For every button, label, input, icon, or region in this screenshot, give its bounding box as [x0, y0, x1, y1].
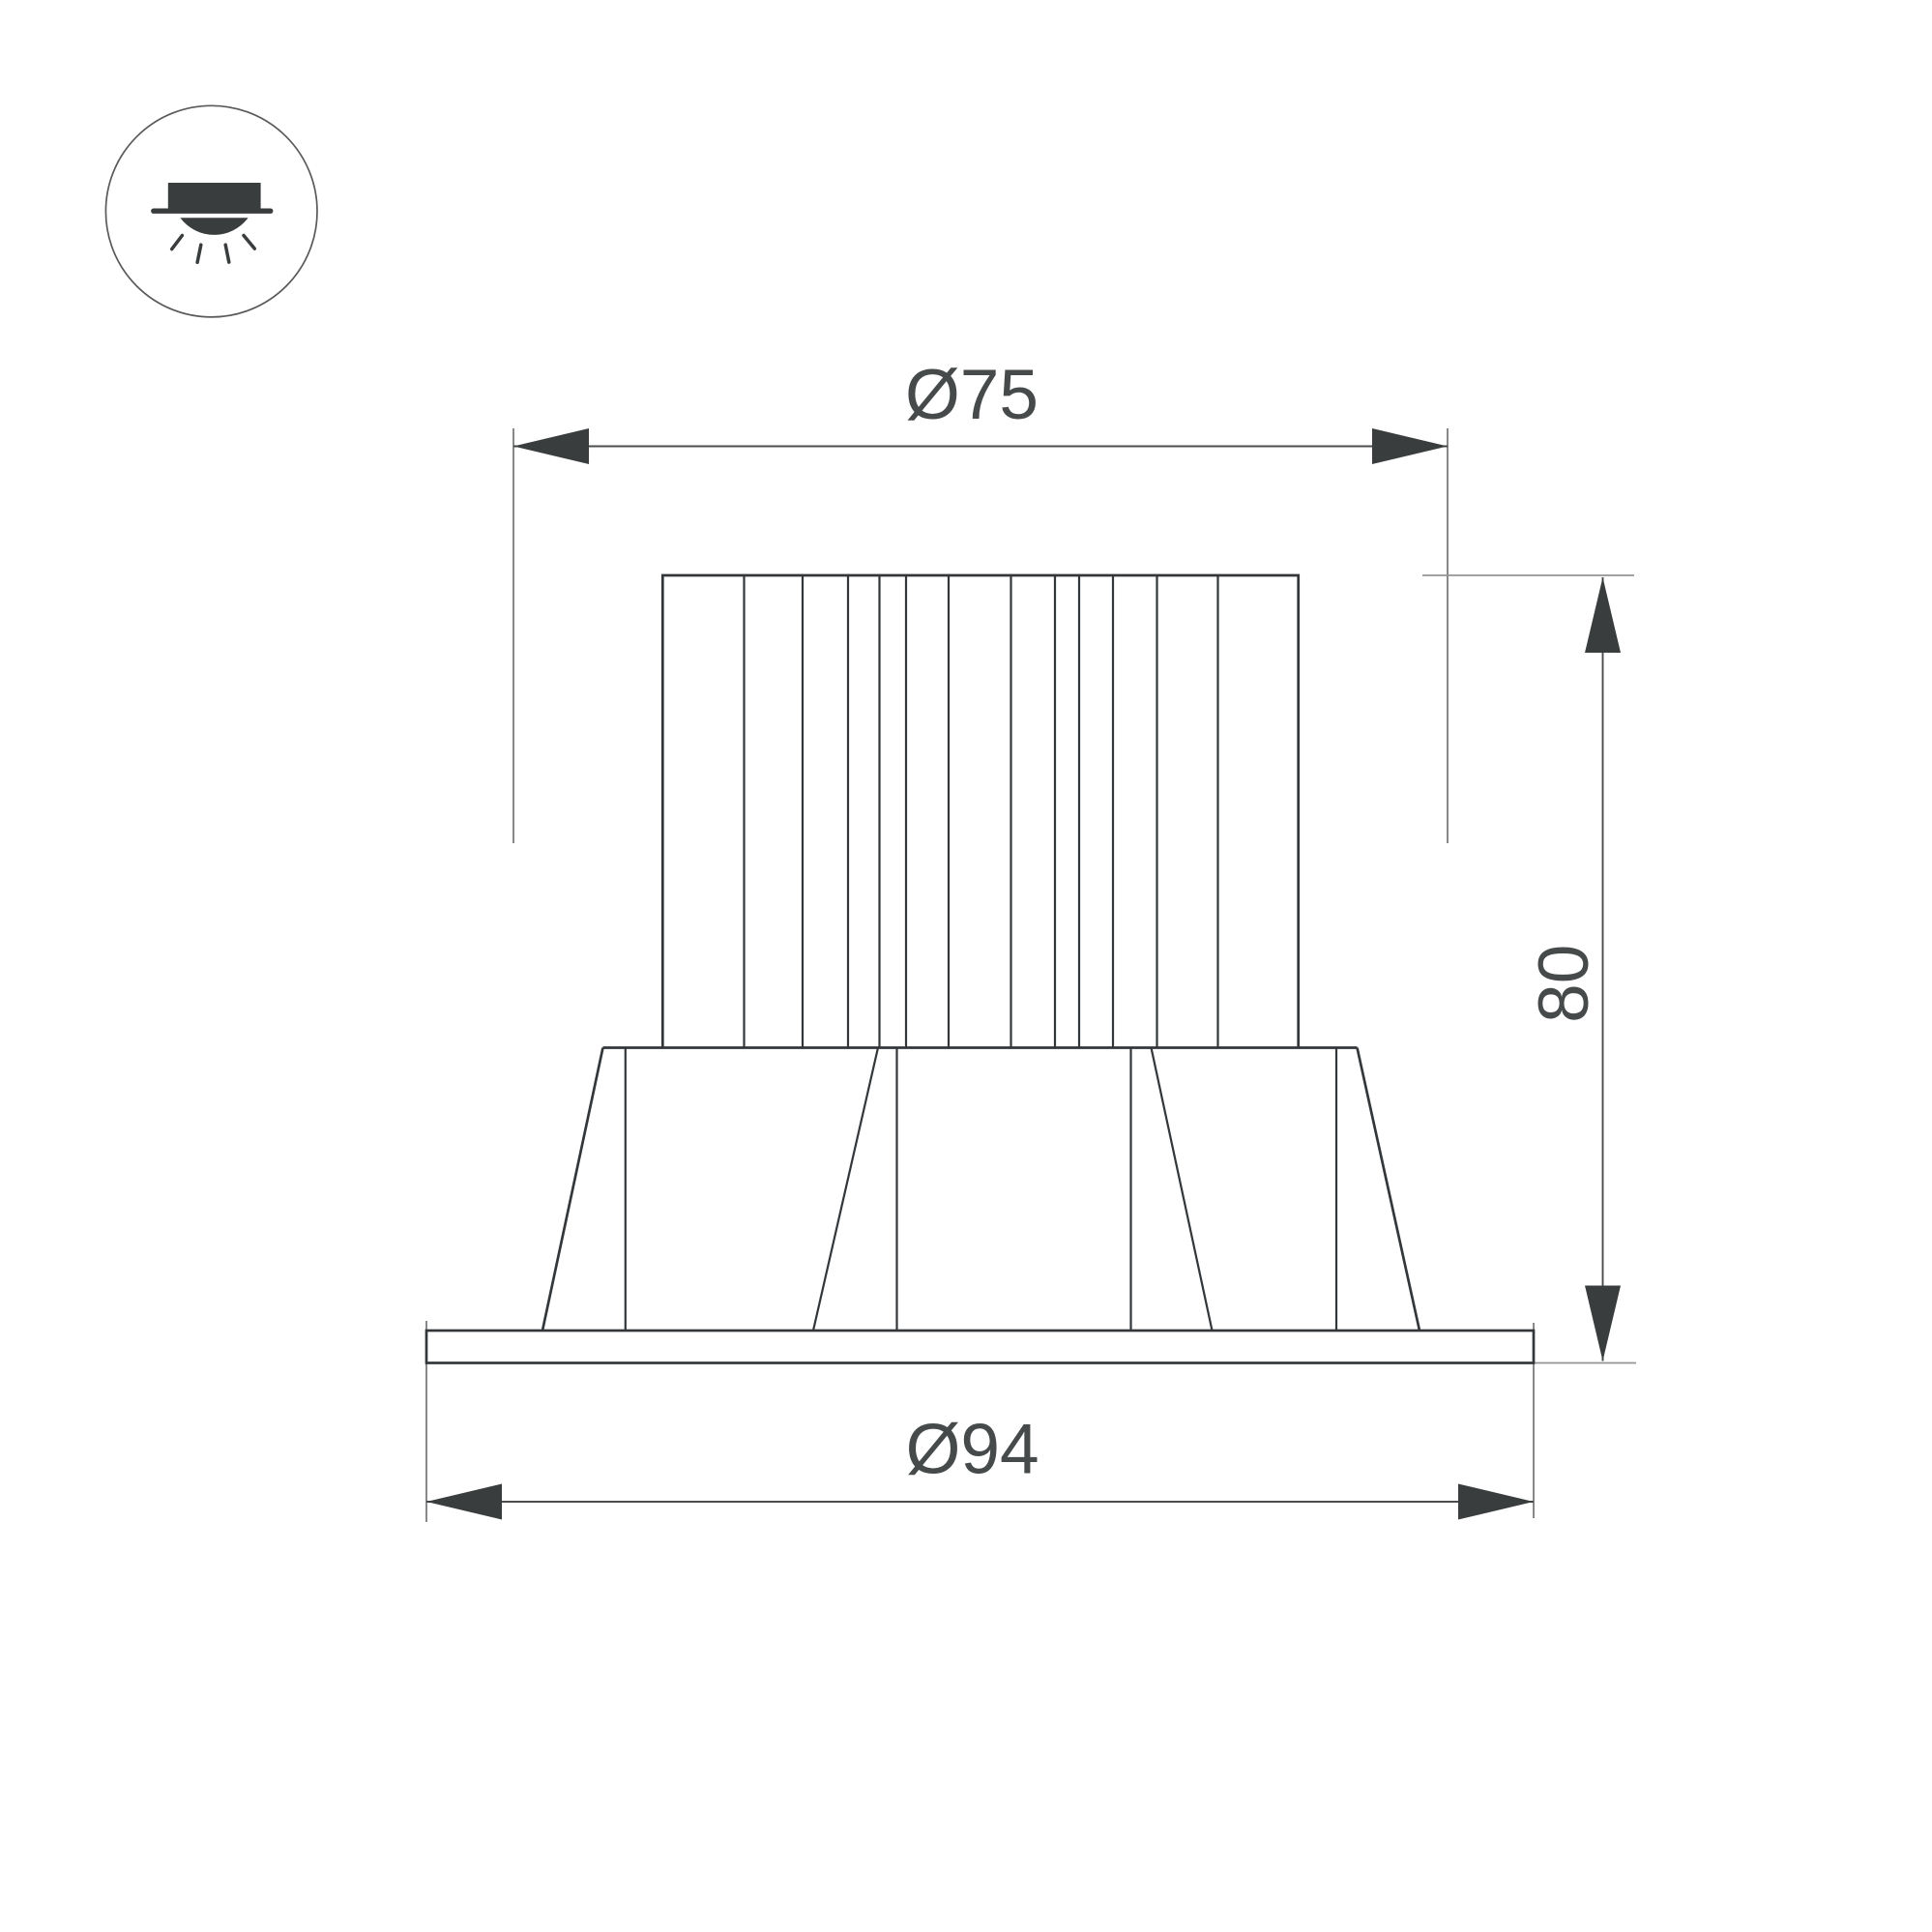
svg-text:Ø94: Ø94 — [906, 1411, 1039, 1489]
svg-text:Ø75: Ø75 — [905, 356, 1039, 434]
svg-text:80: 80 — [1525, 945, 1603, 1023]
